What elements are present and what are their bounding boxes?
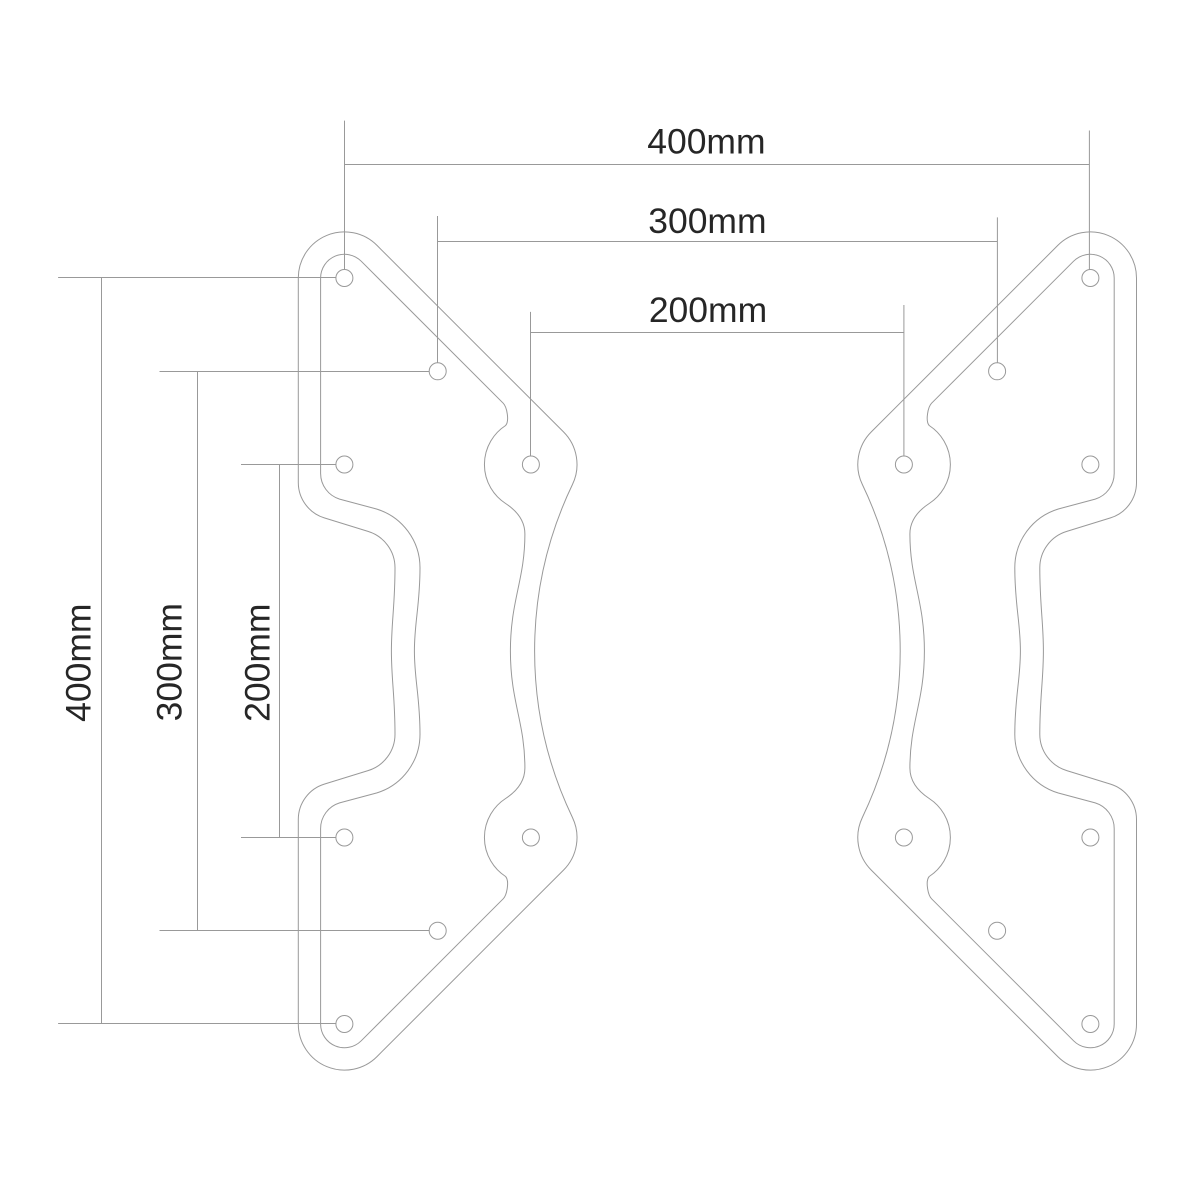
svg-text:300mm: 300mm [648,201,766,241]
svg-text:300mm: 300mm [149,603,189,721]
svg-text:400mm: 400mm [58,604,98,722]
svg-text:200mm: 200mm [238,604,278,722]
svg-text:400mm: 400mm [647,122,765,162]
svg-text:200mm: 200mm [649,290,767,330]
